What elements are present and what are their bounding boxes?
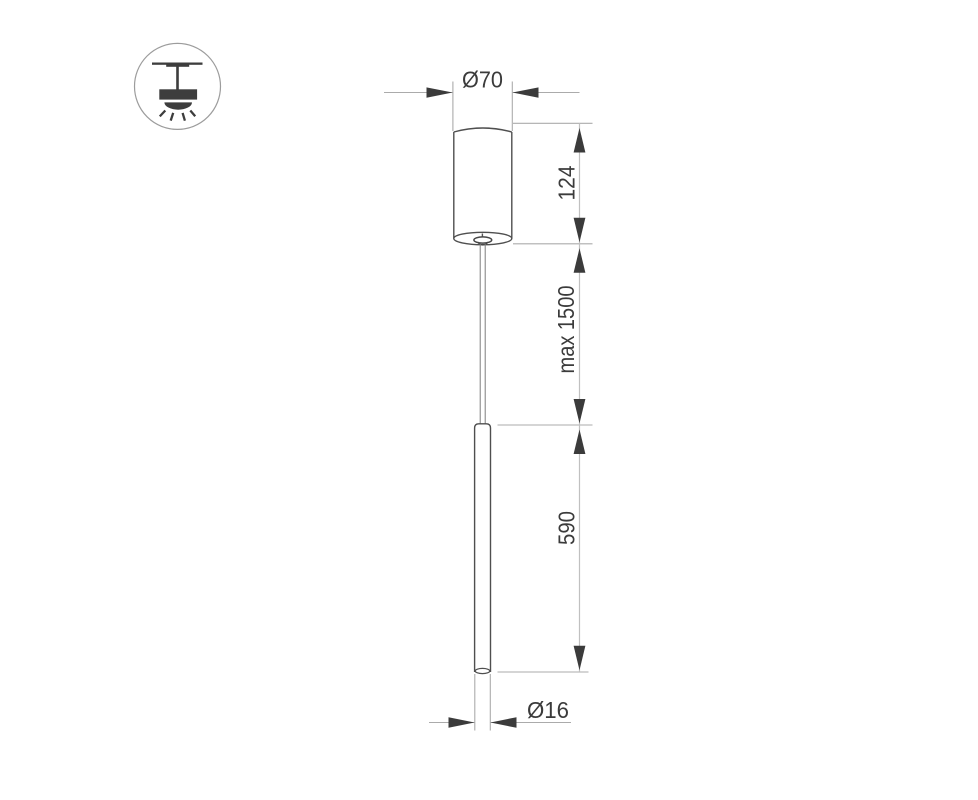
svg-text:590: 590 <box>554 511 580 545</box>
svg-text:124: 124 <box>554 165 580 200</box>
svg-text:Ø16: Ø16 <box>527 697 569 723</box>
svg-text:Ø70: Ø70 <box>462 67 503 93</box>
svg-text:max 1500: max 1500 <box>553 286 579 374</box>
